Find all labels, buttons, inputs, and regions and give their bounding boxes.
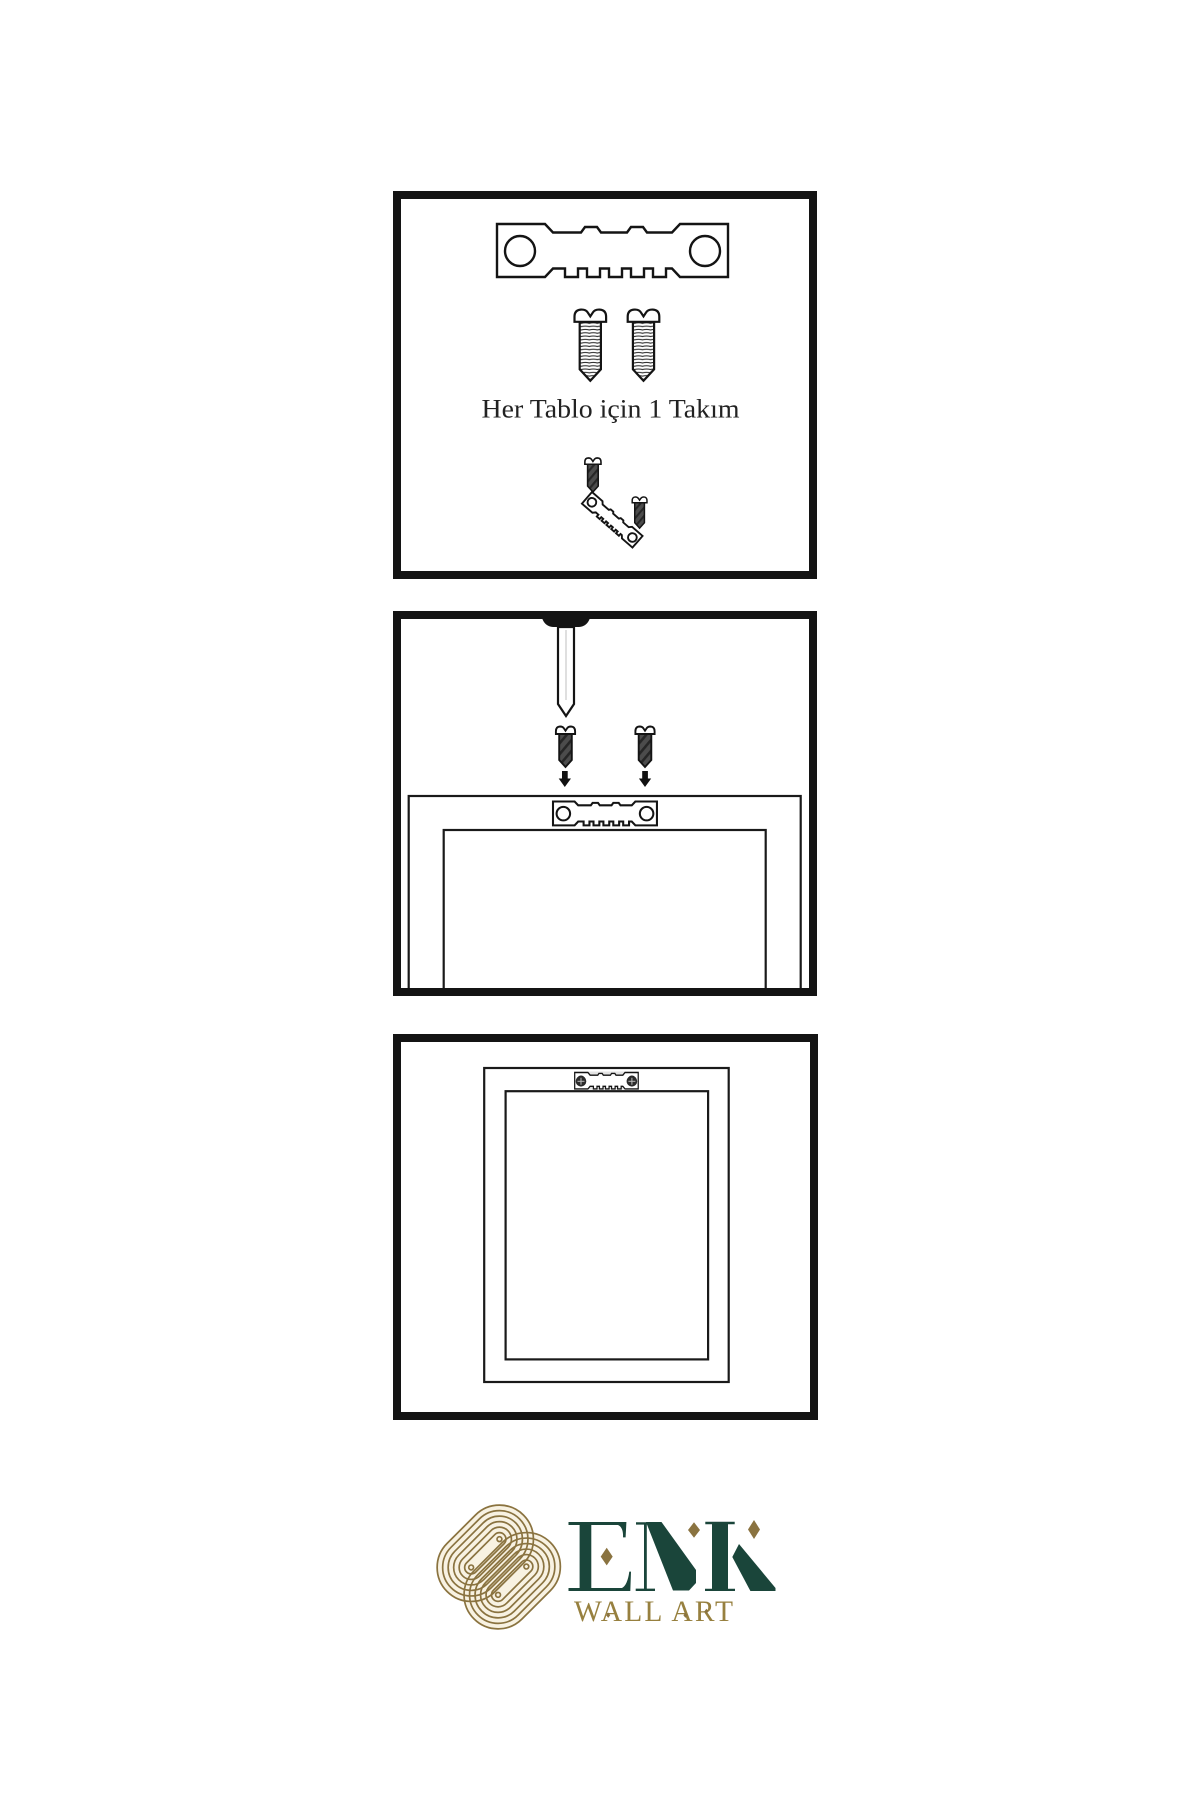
svg-text:Her Tablo için 1 Takım: Her Tablo için 1 Takım [482, 395, 741, 424]
svg-text:WALL ART: WALL ART [574, 1596, 733, 1628]
